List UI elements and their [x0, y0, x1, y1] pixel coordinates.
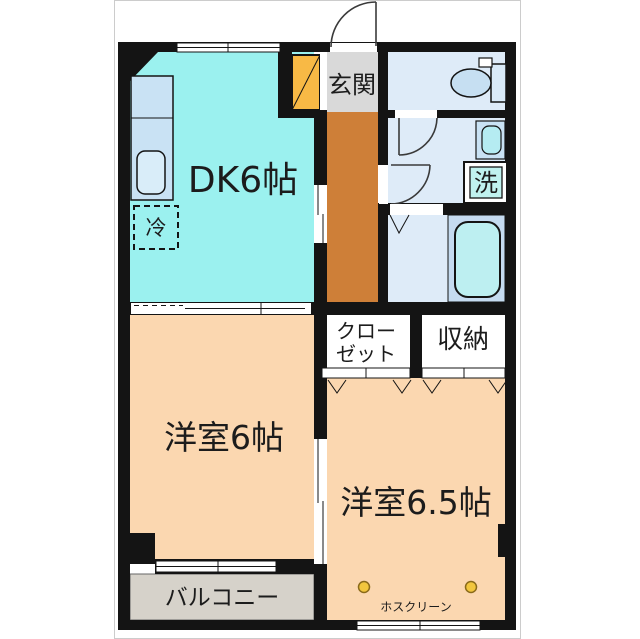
- closet-label-line1: クロー: [336, 319, 396, 343]
- rooms-sliding-door-icon: [314, 439, 327, 564]
- floor-plan-image: 冷 洗 DK6帖 玄関 洋室6帖 洋: [0, 0, 640, 639]
- bathtub-icon: [455, 222, 500, 297]
- wall-left: [118, 42, 130, 630]
- washbasin-icon: [476, 121, 505, 159]
- fridge-label: 冷: [146, 216, 167, 240]
- wall-partition-lower: [314, 564, 327, 630]
- washing-machine-icon: 洗: [464, 162, 507, 203]
- genkan-label: 玄関: [328, 71, 376, 99]
- pillar-right: [498, 524, 516, 557]
- wall-corridor-right-upper: [378, 52, 388, 165]
- wall-dk-right-upper: [314, 118, 327, 185]
- dk-window-icon: [177, 43, 280, 52]
- wall-corridor-right-lower: [378, 203, 388, 315]
- corridor-floor: [327, 112, 378, 302]
- storage-label: 収納: [437, 325, 489, 355]
- dk-label: DK6帖: [188, 160, 298, 201]
- wall-under-shoebox: [278, 110, 327, 118]
- west6-window-icon: [156, 561, 276, 572]
- balcony-label: バルコニー: [165, 585, 280, 611]
- washer-label: 洗: [474, 169, 498, 197]
- west6-label: 洋室6帖: [164, 418, 284, 457]
- dk-bottom-sliding-door-icon: [131, 303, 311, 314]
- shoe-cabinet-icon: [292, 53, 327, 110]
- west65-window-icon: [357, 621, 480, 630]
- dk-sliding-door-icon: [314, 185, 327, 243]
- hosclean-label: ホスクリーン: [380, 600, 451, 614]
- closet-label-line2: ゼット: [336, 342, 396, 366]
- wall-dk-right-lower: [314, 243, 327, 302]
- wall-beside-shoebox: [278, 52, 292, 118]
- kitchen-sink-icon: [131, 76, 173, 200]
- pillar-bottom-left: [130, 533, 155, 564]
- floor-plan-svg: 冷 洗 DK6帖 玄関 洋室6帖 洋: [0, 0, 640, 639]
- wall-closet-storage: [410, 315, 422, 378]
- west65-label: 洋室6.5帖: [340, 483, 491, 522]
